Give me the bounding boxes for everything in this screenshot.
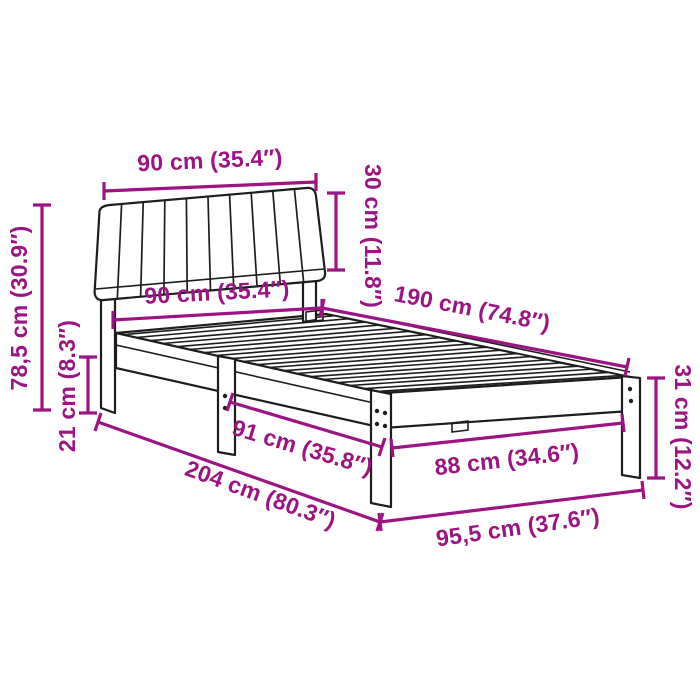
dimension-label: 204 cm (80.3″) [182, 455, 340, 534]
dimension-label: 95,5 cm (37.6″) [434, 503, 601, 552]
dimension-label: 30 cm (11.8″) [360, 164, 386, 308]
screw-hole [383, 411, 387, 415]
dimension-clearance: 21 cm (8.3″) [54, 320, 97, 452]
screw-hole [375, 422, 379, 426]
headboard-seam [186, 198, 187, 293]
product-dimension-diagram: 90 cm (35.4″) 30 cm (11.8″) 78,5 cm (30.… [0, 0, 700, 700]
screw-hole [628, 387, 632, 391]
dimension-foot-height: 31 cm (12.2″) [647, 364, 696, 509]
dimension-label: 21 cm (8.3″) [54, 320, 80, 452]
dimension-line [327, 193, 345, 270]
dimension-label: 88 cm (34.6″) [433, 438, 580, 480]
dimension-label: 31 cm (12.2″) [670, 364, 696, 509]
dimension-label: 90 cm (35.4″) [137, 144, 283, 176]
dimension-total-width: 95,5 cm (37.6″) [379, 481, 644, 551]
screw-hole [223, 394, 227, 398]
dimension-line [647, 378, 665, 478]
dimension-total-height: 78,5 cm (30.9″) [6, 205, 51, 410]
dimension-line [33, 205, 51, 410]
bed-dimension-drawing: 90 cm (35.4″) 30 cm (11.8″) 78,5 cm (30.… [0, 0, 700, 700]
screw-hole [375, 409, 379, 413]
dimension-line [79, 357, 97, 413]
center-front-leg [218, 356, 235, 455]
screw-hole [629, 399, 633, 403]
dimension-label: 78,5 cm (30.9″) [6, 226, 32, 391]
dimension-headboard-height: 30 cm (11.8″) [327, 164, 386, 308]
screw-hole [383, 424, 387, 428]
headboard-right-post [303, 277, 316, 322]
headboard-seam [164, 200, 165, 295]
